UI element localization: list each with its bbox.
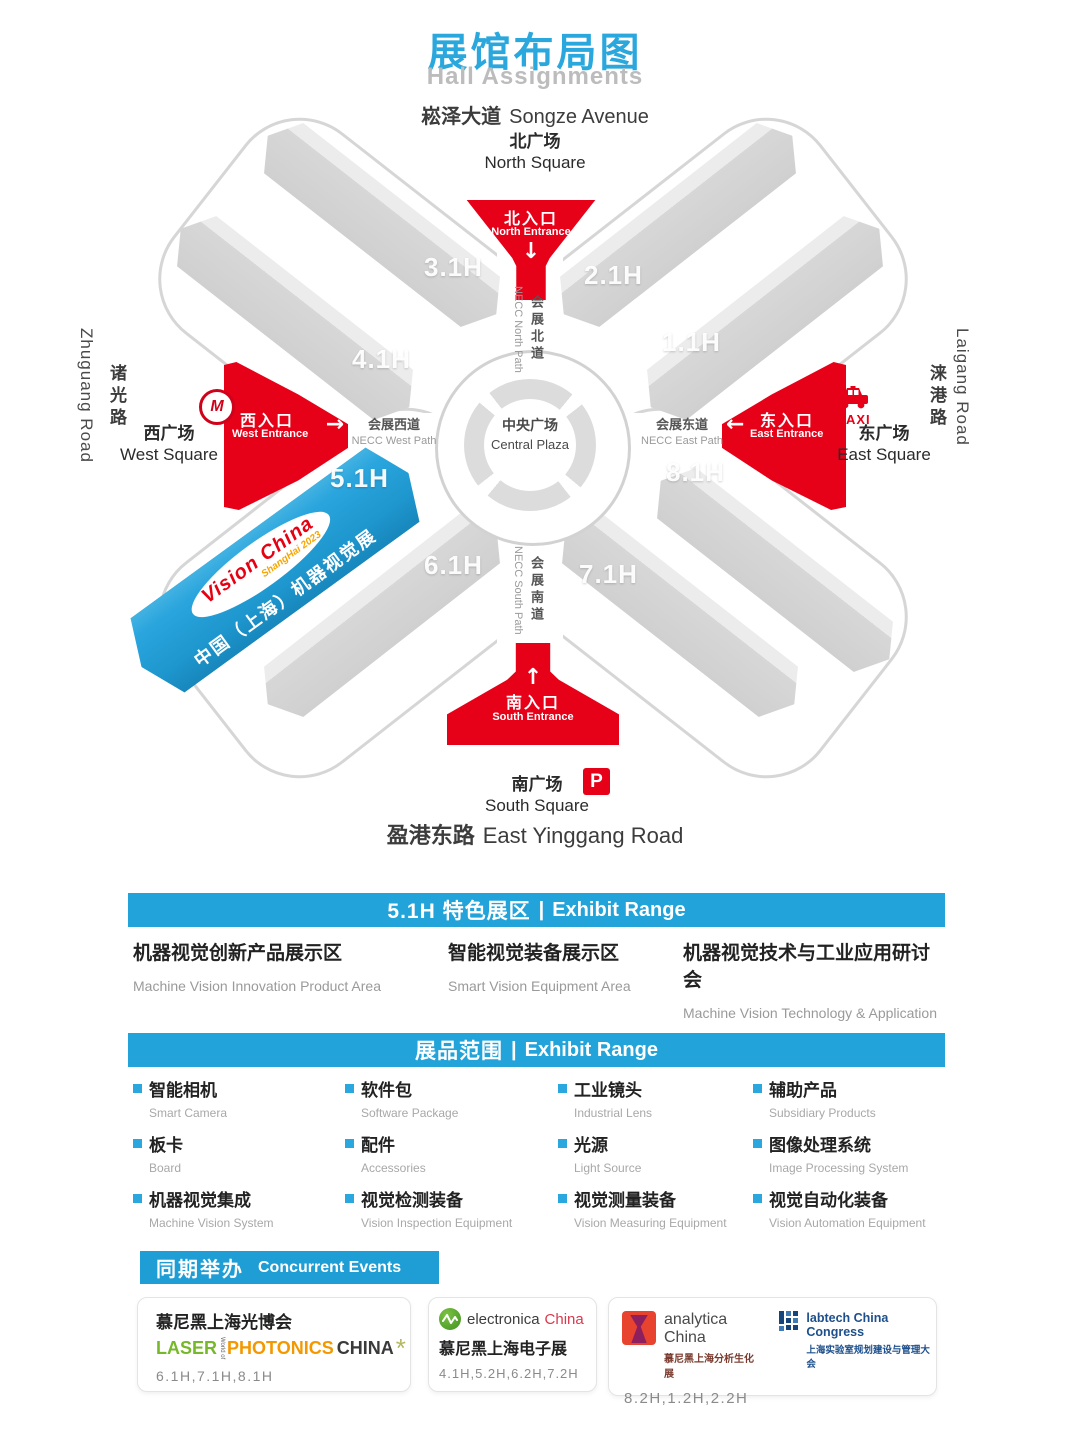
product-item-zh: 智能相机 [149,1076,217,1101]
electronica-logo: electronica China [439,1308,596,1330]
feature-section-title-zh: 5.1H 特色展区 [387,895,530,925]
metro-icon: M [199,389,235,425]
event-card-laser-photonics: 慕尼黑上海光博会 LASER World of PHOTONICS CHINA … [137,1297,411,1392]
event-3-halls: 8.2H,1.2H,2.2H [624,1390,936,1407]
bullet-icon [345,1139,354,1148]
labtech-icon [779,1311,799,1340]
event-1-halls: 6.1H,7.1H,8.1H [156,1368,410,1384]
product-item-en: Subsidiary Products [769,1106,945,1120]
road-east-en: Laigang Road [952,328,972,446]
product-item: 视觉测量装备 Vision Measuring Equipment [558,1186,753,1230]
hall-label-5-1h: 5.1H [330,463,389,494]
product-item: 配件 Accessories [345,1131,558,1175]
square-west-en: West Square [113,444,225,465]
path-west-label: 会展西道 NECC West Path [338,414,450,447]
product-item-zh: 光源 [574,1131,608,1156]
hall-label-2-1h: 2.1H [584,260,643,291]
analytica-logo-zh: 慕尼黑上海分析生化展 [664,1350,761,1380]
square-west-zh: 西广场 [113,423,225,444]
road-south: 盈港东路East Yinggang Road [0,818,1070,850]
square-north-en: North Square [0,152,1070,173]
road-east-zh: 涞港路 [924,364,949,430]
labtech-logo-zh: 上海实验室规划建设与管理大会 [806,1342,936,1370]
analytica-logo-name: analytica China [664,1311,761,1347]
event-1-title: 慕尼黑上海光博会 [156,1308,410,1333]
hall-assignments-poster: 展馆布局图 Hall Assignments 崧泽大道Songze Avenue… [0,0,1070,1436]
product-item-en: Vision Measuring Equipment [574,1216,753,1230]
bullet-icon [133,1139,142,1148]
analytica-icon [622,1311,656,1345]
parking-icon: P [583,768,610,795]
hall-label-1-1h: 1.1H [662,327,721,358]
bullet-icon [345,1194,354,1203]
laser-logo-part3: PHOTONICS [227,1338,334,1359]
products-section-divider: | [511,1039,517,1062]
product-item-en: Board [149,1161,345,1175]
laser-photonics-logo: LASER World of PHOTONICS CHINA * [156,1337,410,1359]
product-item-zh: 图像处理系统 [769,1131,871,1156]
product-item-en: Smart Camera [149,1106,345,1120]
path-south-zh: 会展南道 [527,546,546,635]
feature-section-header: 5.1H 特色展区 | Exhibit Range [128,893,945,927]
taxi-label: TAXI [838,412,871,427]
central-plaza-en: Central Plaza [455,437,605,452]
feature-item-2: 智能视觉装备展示区 Smart Vision Equipment Area [448,938,678,1000]
east-entrance-en: East Entrance [750,428,823,440]
events-section-header: 同期举办 Concurrent Events [140,1251,439,1284]
path-west-en: NECC West Path [338,435,450,447]
metro-icon-glyph: M [210,398,223,416]
south-entrance-arrow-icon: ↑ [447,667,619,689]
event-card-electronica: electronica China 慕尼黑上海电子展 4.1H,5.2H,6.2… [428,1297,597,1392]
laser-logo-part1: LASER [156,1338,217,1359]
path-north-en: NECC North Path [512,286,524,373]
product-item-zh: 视觉测量装备 [574,1186,676,1211]
product-item-zh: 视觉自动化装备 [769,1186,888,1211]
product-item-zh: 视觉检测装备 [361,1186,463,1211]
event-2-halls: 4.1H,5.2H,6.2H,7.2H [439,1366,596,1381]
feature-section-title-en: Exhibit Range [552,899,685,922]
feature-section-divider: | [539,899,545,922]
product-item-en: Image Processing System [769,1161,945,1175]
path-west-zh: 会展西道 [338,414,450,433]
analytica-logo: analytica China 慕尼黑上海分析生化展 [622,1311,761,1380]
road-south-en: East Yinggang Road [483,823,684,848]
south-entrance-en: South Entrance [447,711,619,723]
feature-item-2-zh: 智能视觉装备展示区 [448,938,678,965]
bullet-icon [345,1084,354,1093]
product-item-en: Software Package [361,1106,558,1120]
product-item: 辅助产品 Subsidiary Products [753,1076,945,1120]
product-item-en: Light Source [574,1161,753,1175]
north-entrance-en: North Entrance [464,226,598,238]
labtech-logo-name: labtech China Congress [806,1311,936,1339]
road-north: 崧泽大道Songze Avenue [0,100,1070,129]
product-item-en: Machine Vision System [149,1216,345,1230]
event-card-analytica-labtech: analytica China 慕尼黑上海分析生化展 [608,1297,937,1396]
product-item-en: Vision Inspection Equipment [361,1216,558,1230]
path-east-label: 会展东道 NECC East Path [626,414,738,447]
bullet-icon [558,1084,567,1093]
bullet-icon [753,1084,762,1093]
products-section-title-zh: 展品范围 [415,1035,503,1065]
labtech-logo: labtech China Congress 上海实验室规划建设与管理大会 [779,1311,936,1370]
product-item: 板卡 Board [133,1131,345,1175]
product-item: 光源 Light Source [558,1131,753,1175]
electronica-logo-region: China [545,1311,584,1328]
path-east-en: NECC East Path [626,435,738,447]
square-east-en: East Square [828,444,940,465]
bullet-icon [133,1194,142,1203]
page-subtitle: Hall Assignments [0,63,1070,91]
hall-label-3-1h: 3.1H [424,252,483,283]
product-item: 图像处理系统 Image Processing System [753,1131,945,1175]
feature-item-1: 机器视觉创新产品展示区 Machine Vision Innovation Pr… [133,938,423,1000]
product-item-zh: 软件包 [361,1076,412,1101]
west-entrance-en: West Entrance [232,428,308,440]
product-item-zh: 辅助产品 [769,1076,837,1101]
central-plaza-zh: 中央广场 [455,415,605,435]
product-item: 工业镜头 Industrial Lens [558,1076,753,1120]
products-section-header: 展品范围 | Exhibit Range [128,1033,945,1067]
events-section-title-zh: 同期举办 [156,1253,244,1282]
electronica-logo-name: electronica [467,1311,540,1328]
product-item: 软件包 Software Package [345,1076,558,1120]
hall-label-8-1h: 8.1H [666,457,725,488]
sparkle-icon: * [396,1343,406,1353]
bullet-icon [753,1194,762,1203]
feature-item-2-en: Smart Vision Equipment Area [448,974,678,1000]
product-item-zh: 配件 [361,1131,395,1156]
hall-label-7-1h: 7.1H [579,559,638,590]
road-north-en: Songze Avenue [509,106,649,128]
path-north-zh: 会展北道 [527,286,546,373]
path-south-en: NECC South Path [512,546,524,635]
product-item: 视觉自动化装备 Vision Automation Equipment [753,1186,945,1230]
laser-logo-part4: CHINA [337,1338,394,1359]
road-south-zh: 盈港东路 [387,823,475,848]
bullet-icon [558,1139,567,1148]
products-grid: 智能相机 Smart Camera 软件包 Software Package 工… [133,1076,945,1230]
square-north: 北广场 North Square [0,131,1070,173]
feature-item-3-zh: 机器视觉技术与工业应用研讨会 [683,938,945,992]
hall-label-4-1h: 4.1H [352,344,411,375]
bullet-icon [558,1194,567,1203]
road-west-zh: 诸光路 [104,364,129,430]
products-section-title-en: Exhibit Range [525,1039,658,1062]
product-item: 视觉检测装备 Vision Inspection Equipment [345,1186,558,1230]
square-south-en: South Square [457,795,617,816]
path-north-label: NECC North Path 会展北道 [512,286,546,373]
square-west: 西广场 West Square [113,423,225,465]
road-west-en: Zhuguang Road [76,328,96,463]
electronica-wave-icon [439,1308,461,1330]
feature-item-1-zh: 机器视觉创新产品展示区 [133,938,423,965]
laser-logo-part2: World of [219,1337,225,1359]
product-item: 智能相机 Smart Camera [133,1076,345,1120]
product-item-zh: 机器视觉集成 [149,1186,251,1211]
product-item-zh: 板卡 [149,1131,183,1156]
product-item: 机器视觉集成 Machine Vision System [133,1186,345,1230]
square-east: 东广场 East Square [828,423,940,465]
product-item-en: Vision Automation Equipment [769,1216,945,1230]
road-north-zh: 崧泽大道 [421,106,501,128]
event-2-title: 慕尼黑上海电子展 [439,1335,596,1359]
events-section-title-en: Concurrent Events [258,1259,401,1277]
central-plaza-label: 中央广场 Central Plaza [455,415,605,452]
hall-label-6-1h: 6.1H [424,550,483,581]
product-item-en: Accessories [361,1161,558,1175]
bullet-icon [133,1084,142,1093]
feature-item-1-en: Machine Vision Innovation Product Area [133,974,423,1000]
path-east-zh: 会展东道 [626,414,738,433]
bullet-icon [753,1139,762,1148]
square-north-zh: 北广场 [0,131,1070,152]
product-item-zh: 工业镜头 [574,1076,642,1101]
south-entrance-zh: 南入口 [447,689,619,713]
product-item-en: Industrial Lens [574,1106,753,1120]
path-south-label: NECC South Path 会展南道 [512,546,546,635]
